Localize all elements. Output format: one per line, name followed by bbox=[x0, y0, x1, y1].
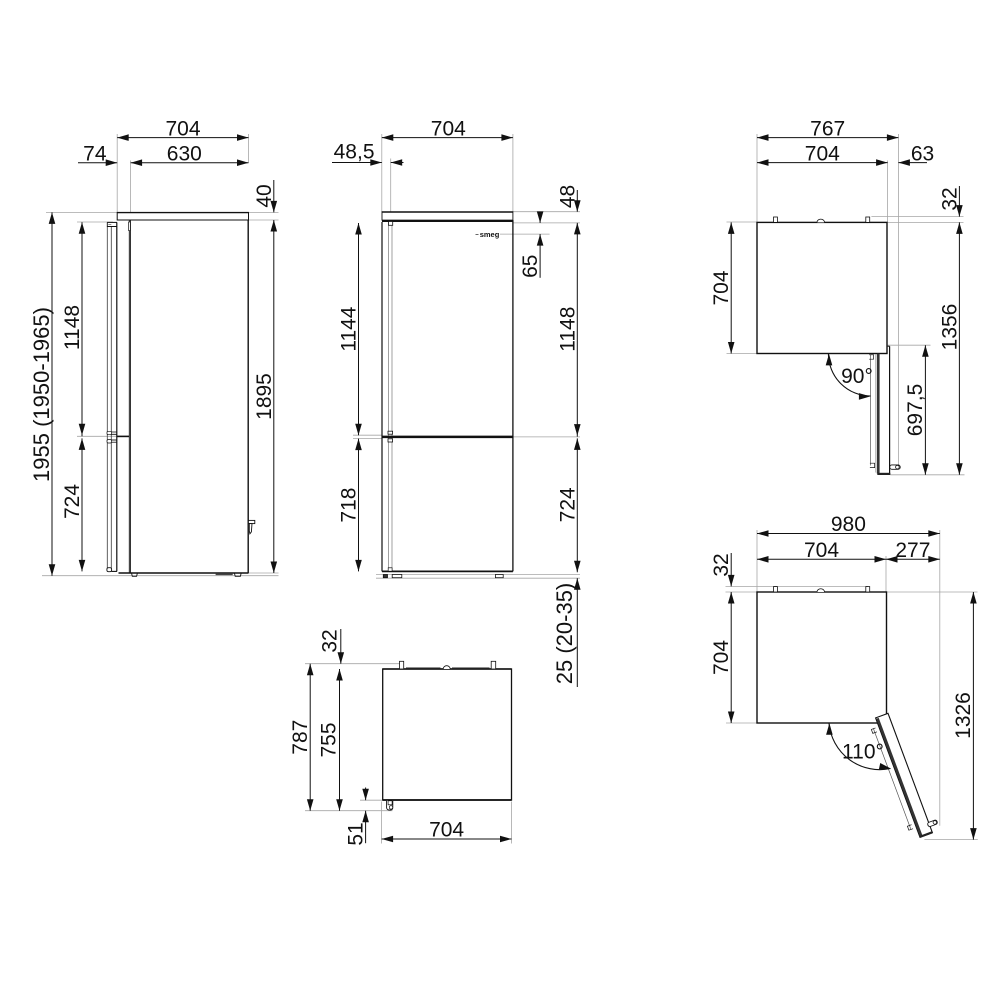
svg-text:1148: 1148 bbox=[556, 307, 579, 352]
svg-text:65: 65 bbox=[519, 255, 542, 278]
svg-text:724: 724 bbox=[61, 484, 84, 519]
svg-text:704: 704 bbox=[431, 117, 466, 140]
svg-text:704: 704 bbox=[165, 117, 200, 140]
svg-text:1955 (1950-1965): 1955 (1950-1965) bbox=[29, 307, 54, 482]
svg-text:1895: 1895 bbox=[253, 373, 276, 420]
svg-text:980: 980 bbox=[831, 513, 866, 536]
svg-text:630: 630 bbox=[167, 142, 202, 165]
svg-text:110°: 110° bbox=[842, 741, 884, 764]
svg-text:74: 74 bbox=[83, 142, 107, 165]
svg-text:32: 32 bbox=[939, 187, 962, 210]
svg-text:697,5: 697,5 bbox=[904, 384, 927, 437]
svg-text:smeg: smeg bbox=[480, 230, 500, 239]
svg-text:1326: 1326 bbox=[952, 692, 975, 739]
svg-text:704: 704 bbox=[804, 539, 839, 562]
svg-text:704: 704 bbox=[429, 819, 464, 842]
svg-text:1356: 1356 bbox=[939, 304, 962, 351]
svg-text:32: 32 bbox=[710, 553, 733, 576]
svg-text:51: 51 bbox=[344, 822, 367, 845]
svg-text:48: 48 bbox=[556, 185, 579, 208]
svg-text:32: 32 bbox=[319, 629, 342, 652]
svg-text:25 (20-35): 25 (20-35) bbox=[552, 583, 577, 685]
svg-text:718: 718 bbox=[338, 488, 361, 523]
svg-text:90°: 90° bbox=[841, 365, 873, 388]
svg-text:787: 787 bbox=[289, 720, 312, 755]
svg-text:277: 277 bbox=[895, 539, 930, 562]
svg-text:40: 40 bbox=[253, 184, 276, 207]
svg-text:63: 63 bbox=[911, 142, 934, 165]
svg-text:704: 704 bbox=[805, 142, 840, 165]
svg-text:48,5: 48,5 bbox=[334, 141, 375, 164]
svg-text:704: 704 bbox=[710, 270, 733, 305]
svg-text:1144: 1144 bbox=[338, 306, 361, 351]
svg-text:1148: 1148 bbox=[61, 305, 84, 350]
svg-text:755: 755 bbox=[317, 722, 340, 757]
svg-text:724: 724 bbox=[556, 487, 579, 522]
svg-text:704: 704 bbox=[710, 640, 733, 675]
svg-text:767: 767 bbox=[810, 117, 845, 140]
